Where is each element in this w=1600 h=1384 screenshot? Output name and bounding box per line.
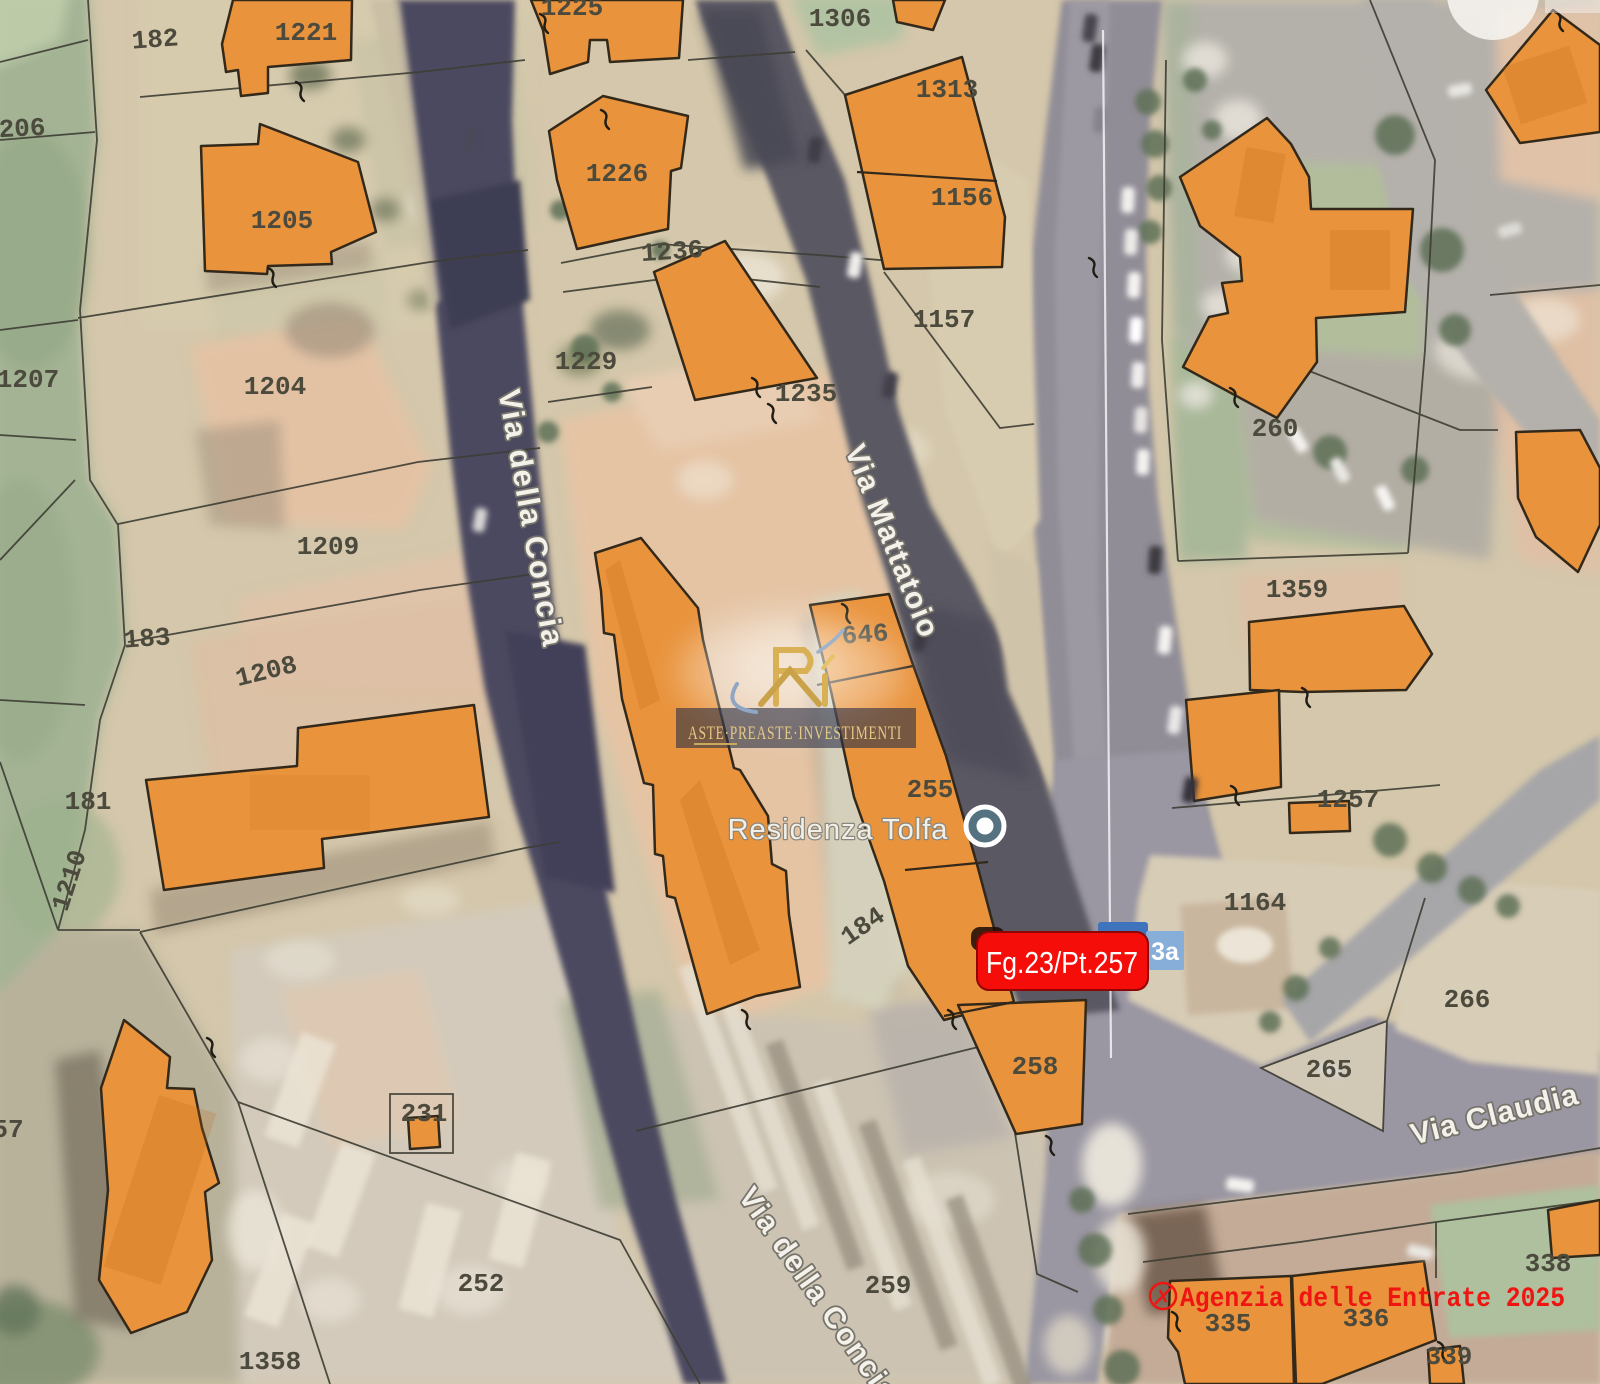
svg-text:1229: 1229 (555, 347, 617, 377)
svg-text:1225: 1225 (541, 0, 603, 23)
svg-text:ASTE·PREASTE·INVESTIMENTI: ASTE·PREASTE·INVESTIMENTI (688, 723, 902, 744)
svg-text:265: 265 (1306, 1055, 1353, 1085)
svg-text:Residenza Tolfa: Residenza Tolfa (728, 814, 949, 846)
svg-text:339: 339 (1426, 1342, 1473, 1372)
svg-text:181: 181 (65, 787, 112, 817)
svg-text:1306: 1306 (809, 4, 871, 34)
svg-text:260: 260 (1252, 414, 1299, 444)
svg-text:1156: 1156 (931, 183, 993, 213)
svg-text:266: 266 (1444, 985, 1491, 1015)
svg-text:Fg.23/Pt.257: Fg.23/Pt.257 (986, 945, 1138, 980)
svg-text:1209: 1209 (297, 532, 359, 562)
svg-text:338: 338 (1525, 1249, 1572, 1279)
svg-text:1359: 1359 (1266, 575, 1328, 605)
svg-text:258: 258 (1012, 1052, 1059, 1082)
svg-text:1221: 1221 (275, 18, 337, 48)
svg-text:Agenzia delle Entrate 2025: Agenzia delle Entrate 2025 (1180, 1284, 1565, 1315)
svg-text:1236: 1236 (640, 235, 704, 269)
svg-text:1313: 1313 (916, 75, 978, 105)
svg-text:1205: 1205 (251, 206, 313, 236)
svg-text:1164: 1164 (1224, 888, 1286, 918)
svg-text:259: 259 (865, 1271, 912, 1301)
svg-text:3a: 3a (1151, 938, 1180, 966)
svg-text:1204: 1204 (244, 372, 306, 402)
svg-text:231: 231 (401, 1099, 448, 1129)
svg-text:182: 182 (131, 23, 180, 56)
svg-text:1358: 1358 (239, 1347, 301, 1377)
svg-text:57: 57 (0, 1115, 24, 1145)
svg-text:1235: 1235 (775, 379, 837, 409)
svg-text:206: 206 (0, 113, 46, 145)
svg-text:1157: 1157 (913, 305, 975, 335)
svg-text:1257: 1257 (1317, 785, 1379, 815)
svg-text:252: 252 (458, 1269, 505, 1299)
svg-text:255: 255 (907, 775, 954, 805)
svg-text:183: 183 (123, 622, 172, 655)
svg-text:1207: 1207 (0, 365, 59, 395)
svg-text:1226: 1226 (586, 159, 648, 189)
